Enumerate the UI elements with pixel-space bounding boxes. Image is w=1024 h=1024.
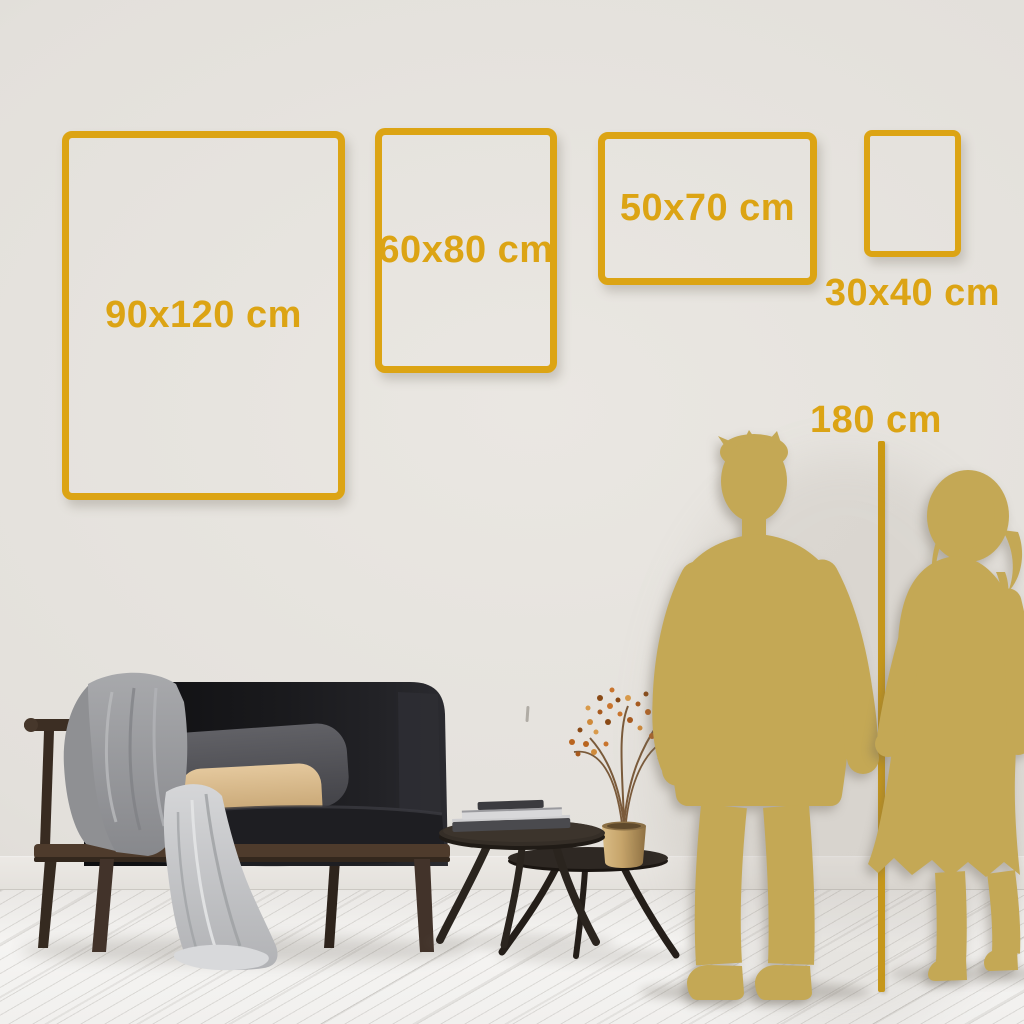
woman-front-leg	[950, 872, 952, 962]
woman-back-leg	[1001, 872, 1006, 953]
woman-back-foot	[984, 949, 1018, 971]
couple-silhouette	[0, 0, 1024, 1024]
man-left-hand	[662, 754, 694, 786]
man-right-leg	[786, 806, 792, 964]
poster-size-guide-scene: 90x120 cm 60x80 cm 50x70 cm 30x40 cm 180…	[0, 0, 1024, 1024]
man-floor-shadow	[640, 982, 870, 1002]
man-head	[721, 440, 787, 522]
man-right-foot	[755, 965, 812, 1000]
man-right-hand	[847, 742, 879, 774]
woman-left-hand	[875, 731, 901, 757]
woman-right-arm	[1008, 602, 1021, 732]
man-left-leg	[718, 806, 724, 964]
man-left-foot	[687, 965, 744, 1000]
woman-head	[937, 479, 995, 549]
